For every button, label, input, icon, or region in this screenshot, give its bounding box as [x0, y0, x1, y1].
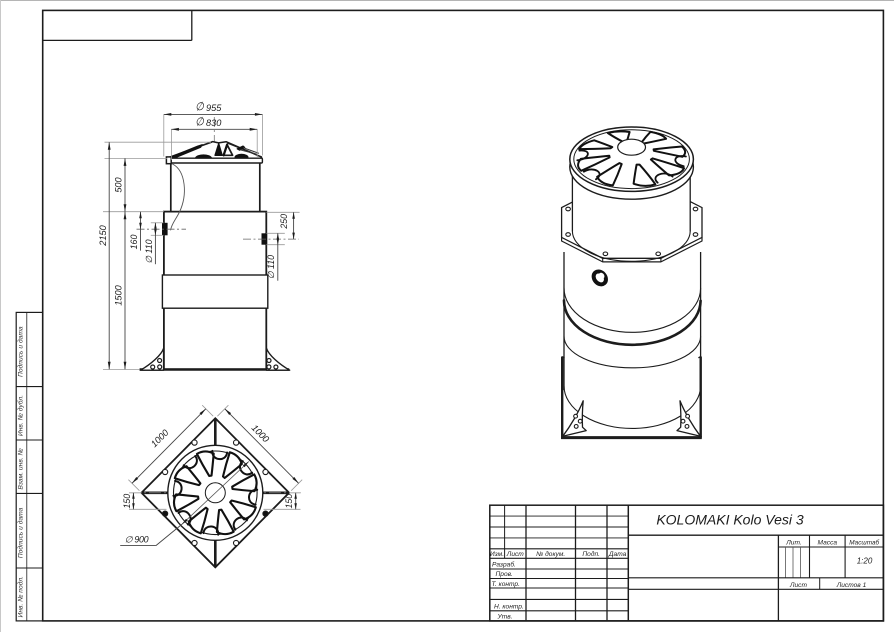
svg-text:1500: 1500: [114, 284, 124, 305]
svg-text:Взам. инв. №: Взам. инв. №: [18, 448, 25, 489]
svg-text:Дата: Дата: [608, 551, 627, 558]
svg-text:Утв.: Утв.: [497, 614, 513, 621]
svg-text:955: 955: [206, 103, 222, 113]
svg-text:№ докум.: № докум.: [536, 550, 565, 558]
svg-text:Т. контр.: Т. контр.: [492, 581, 521, 588]
svg-text:∅ 110: ∅ 110: [266, 255, 276, 279]
svg-text:1:20: 1:20: [857, 557, 873, 566]
svg-text:2150: 2150: [98, 224, 108, 246]
svg-text:Подпись и дата: Подпись и дата: [17, 326, 25, 377]
svg-text:150: 150: [122, 494, 132, 509]
svg-text:150: 150: [284, 494, 294, 509]
svg-text:Масштаб: Масштаб: [849, 539, 879, 547]
svg-text:500: 500: [114, 176, 124, 192]
svg-text:Подп.: Подп.: [582, 550, 600, 558]
svg-text:160: 160: [129, 235, 139, 250]
svg-text:KOLOMAKI Kolo Vesi 3: KOLOMAKI Kolo Vesi 3: [656, 512, 804, 528]
svg-text:Н. контр.: Н. контр.: [494, 603, 524, 610]
svg-text:Лит.: Лит.: [785, 540, 802, 547]
svg-text:Масса: Масса: [818, 540, 838, 547]
svg-text:Листов 1: Листов 1: [836, 582, 867, 589]
svg-text:Изм.: Изм.: [490, 551, 504, 558]
svg-text:Инв. № дубл.: Инв. № дубл.: [17, 395, 25, 436]
svg-text:Лист: Лист: [506, 551, 524, 558]
svg-text:Пров.: Пров.: [496, 571, 514, 578]
svg-text:250: 250: [279, 214, 289, 230]
svg-text:Лист: Лист: [789, 582, 807, 589]
svg-text:Подпись и дата: Подпись и дата: [17, 507, 25, 558]
svg-text:∅ 900: ∅ 900: [125, 535, 149, 545]
svg-text:Разраб.: Разраб.: [492, 561, 516, 569]
svg-text:830: 830: [206, 118, 222, 128]
svg-text:∅ 110: ∅ 110: [144, 239, 154, 263]
svg-text:Инв. № подл.: Инв. № подл.: [17, 576, 25, 618]
